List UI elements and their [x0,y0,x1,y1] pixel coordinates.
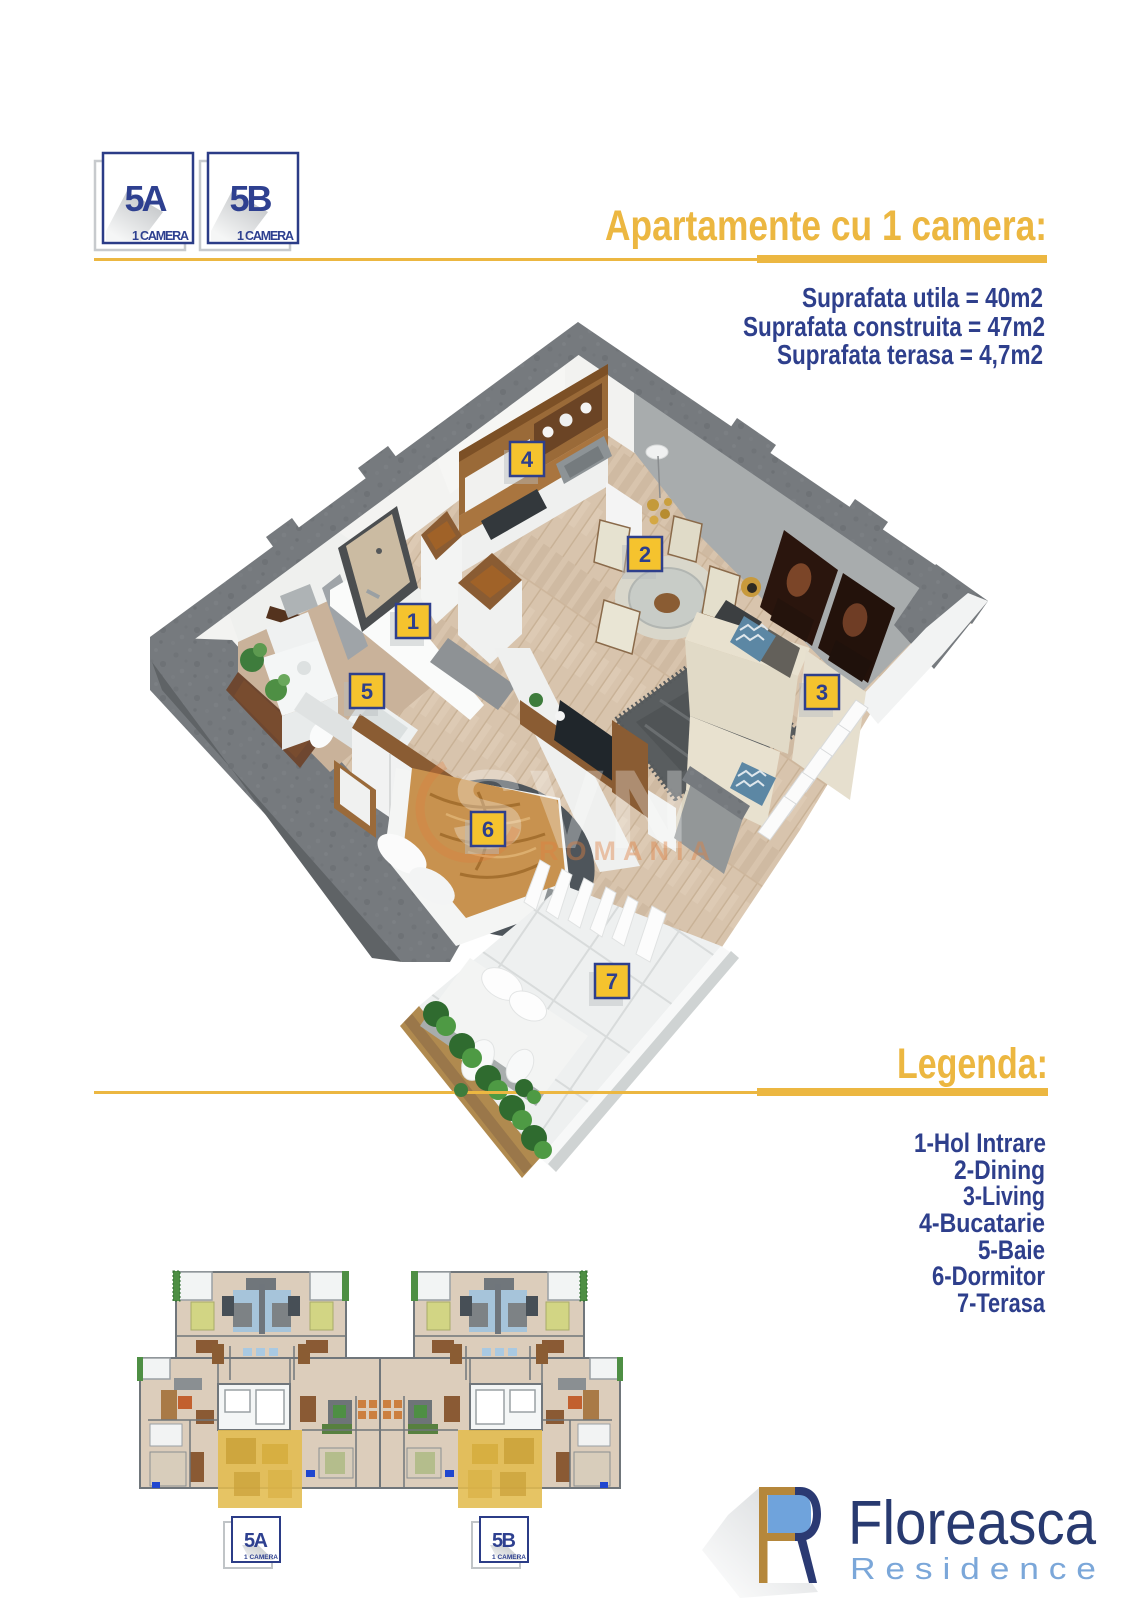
svg-text:1 CAMERA: 1 CAMERA [492,1554,526,1561]
svg-text:3-Living: 3-Living [963,1181,1045,1211]
svg-text:3: 3 [816,680,828,705]
svg-text:1 CAMERA: 1 CAMERA [132,229,189,243]
svg-text:7: 7 [606,969,618,994]
svg-text:5B: 5B [492,1530,516,1552]
svg-text:1 CAMERA: 1 CAMERA [237,229,294,243]
svg-text:Legenda:: Legenda: [897,1040,1048,1088]
svg-text:1-Hol Intrare: 1-Hol Intrare [914,1128,1046,1158]
svg-text:6: 6 [482,817,494,842]
svg-text:R e s i d e n c e: R e s i d e n c e [850,1551,1096,1586]
svg-text:7-Terasa: 7-Terasa [957,1288,1045,1318]
svg-text:4-Bucatarie: 4-Bucatarie [919,1208,1045,1238]
svg-text:4: 4 [521,447,534,472]
svg-text:Apartamente cu 1 camera:: Apartamente cu 1 camera: [605,202,1047,250]
svg-text:6-Dormitor: 6-Dormitor [932,1261,1045,1291]
svg-text:5A: 5A [244,1530,268,1552]
svg-text:5B: 5B [230,178,273,219]
svg-text:1: 1 [407,609,419,634]
svg-text:5A: 5A [125,178,168,219]
svg-text:1 CAMERA: 1 CAMERA [244,1554,278,1561]
svg-text:5: 5 [361,679,373,704]
svg-text:ROMANIA: ROMANIA [539,836,717,866]
svg-text:Floreasca: Floreasca [848,1489,1096,1558]
svg-text:2: 2 [639,542,651,567]
